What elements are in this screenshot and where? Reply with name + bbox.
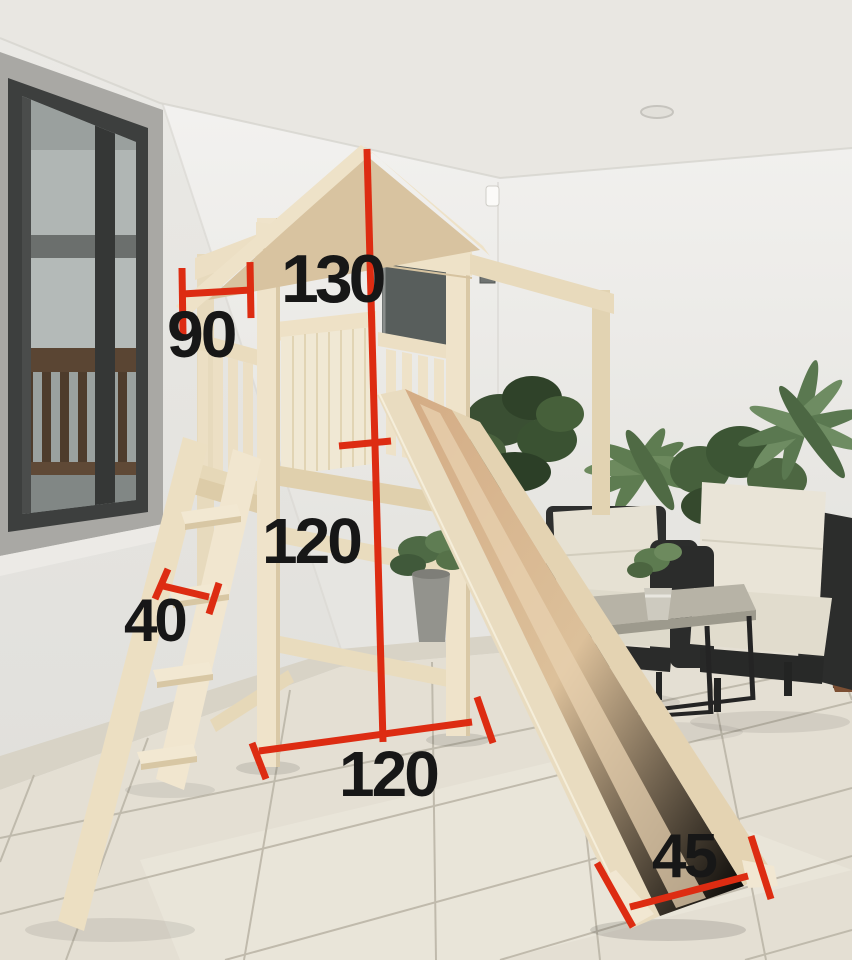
scene [0,0,852,960]
annotated-playhouse-photo: 130 90 120 40 120 45 [0,0,852,960]
dim-tick-90-right [250,262,251,318]
wall-sensor [486,186,499,206]
dimension-label-mid: 120 [262,509,360,573]
plank-wall [281,327,372,476]
dim-line-90 [182,290,251,294]
ceiling-light [641,106,673,118]
dimension-label-upper-left: 90 [167,301,234,367]
window-reflection [20,90,140,520]
dimension-label-slide: 45 [652,826,715,888]
dim-tick-platform [339,441,391,446]
dimension-label-bottom: 120 [339,742,437,806]
dimension-label-top: 130 [281,245,382,313]
window [0,52,163,576]
rear-right-post [592,290,610,515]
dimension-label-ladder: 40 [124,591,185,651]
